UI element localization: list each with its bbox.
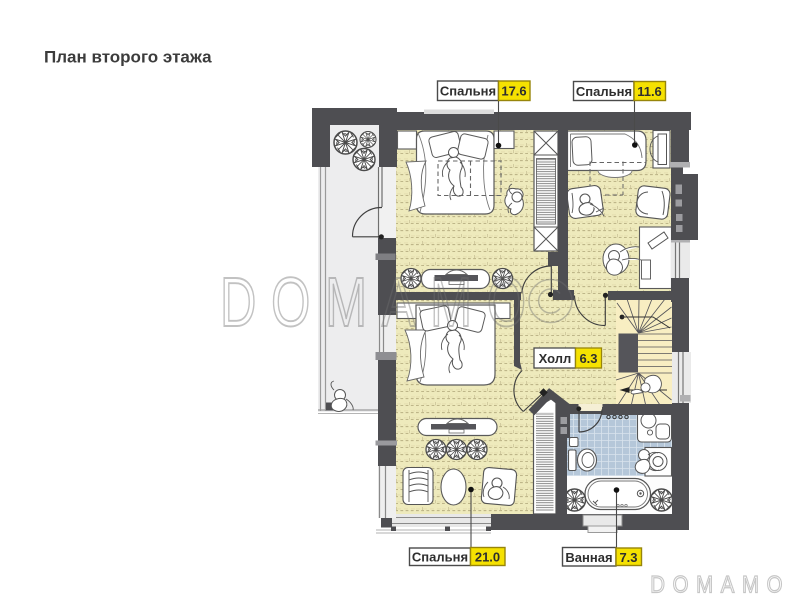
svg-text:Спальня: Спальня: [576, 84, 632, 99]
svg-text:Спальня: Спальня: [412, 550, 468, 565]
svg-text:7.3: 7.3: [619, 550, 637, 565]
svg-text:17.6: 17.6: [501, 84, 526, 99]
svg-text:6.3: 6.3: [579, 351, 597, 366]
svg-text:Холл: Холл: [539, 351, 572, 366]
svg-text:DOMAMO: DOMAMO: [650, 571, 790, 598]
svg-text:Ванная: Ванная: [565, 550, 612, 565]
svg-text:План второго этажа: План второго этажа: [44, 48, 212, 67]
svg-text:11.6: 11.6: [637, 84, 662, 99]
svg-text:DOMAMO: DOMAMO: [220, 263, 541, 341]
svg-text:21.0: 21.0: [475, 550, 500, 565]
svg-text:Спальня: Спальня: [440, 84, 496, 99]
